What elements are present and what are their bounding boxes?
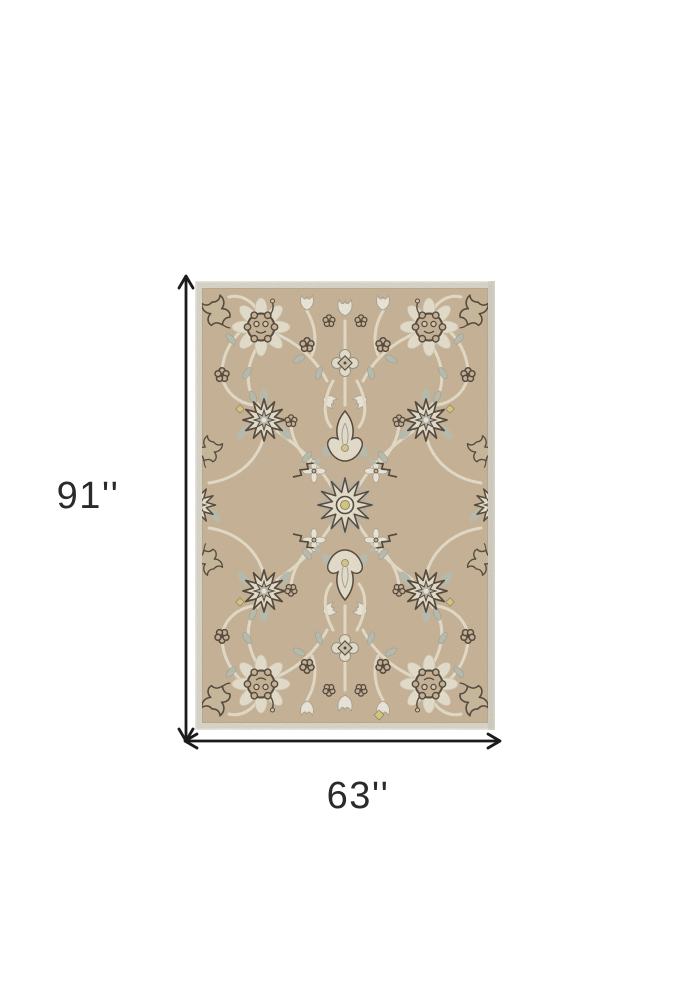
rug-image [195,281,495,730]
product-dimension-diagram: 91'' 63'' [0,0,685,1000]
height-dimension-label: 91'' [40,474,136,518]
width-arrow [185,734,500,748]
rug-illustration [195,281,495,730]
width-dimension-label: 63'' [306,774,410,818]
height-arrow [179,276,193,741]
